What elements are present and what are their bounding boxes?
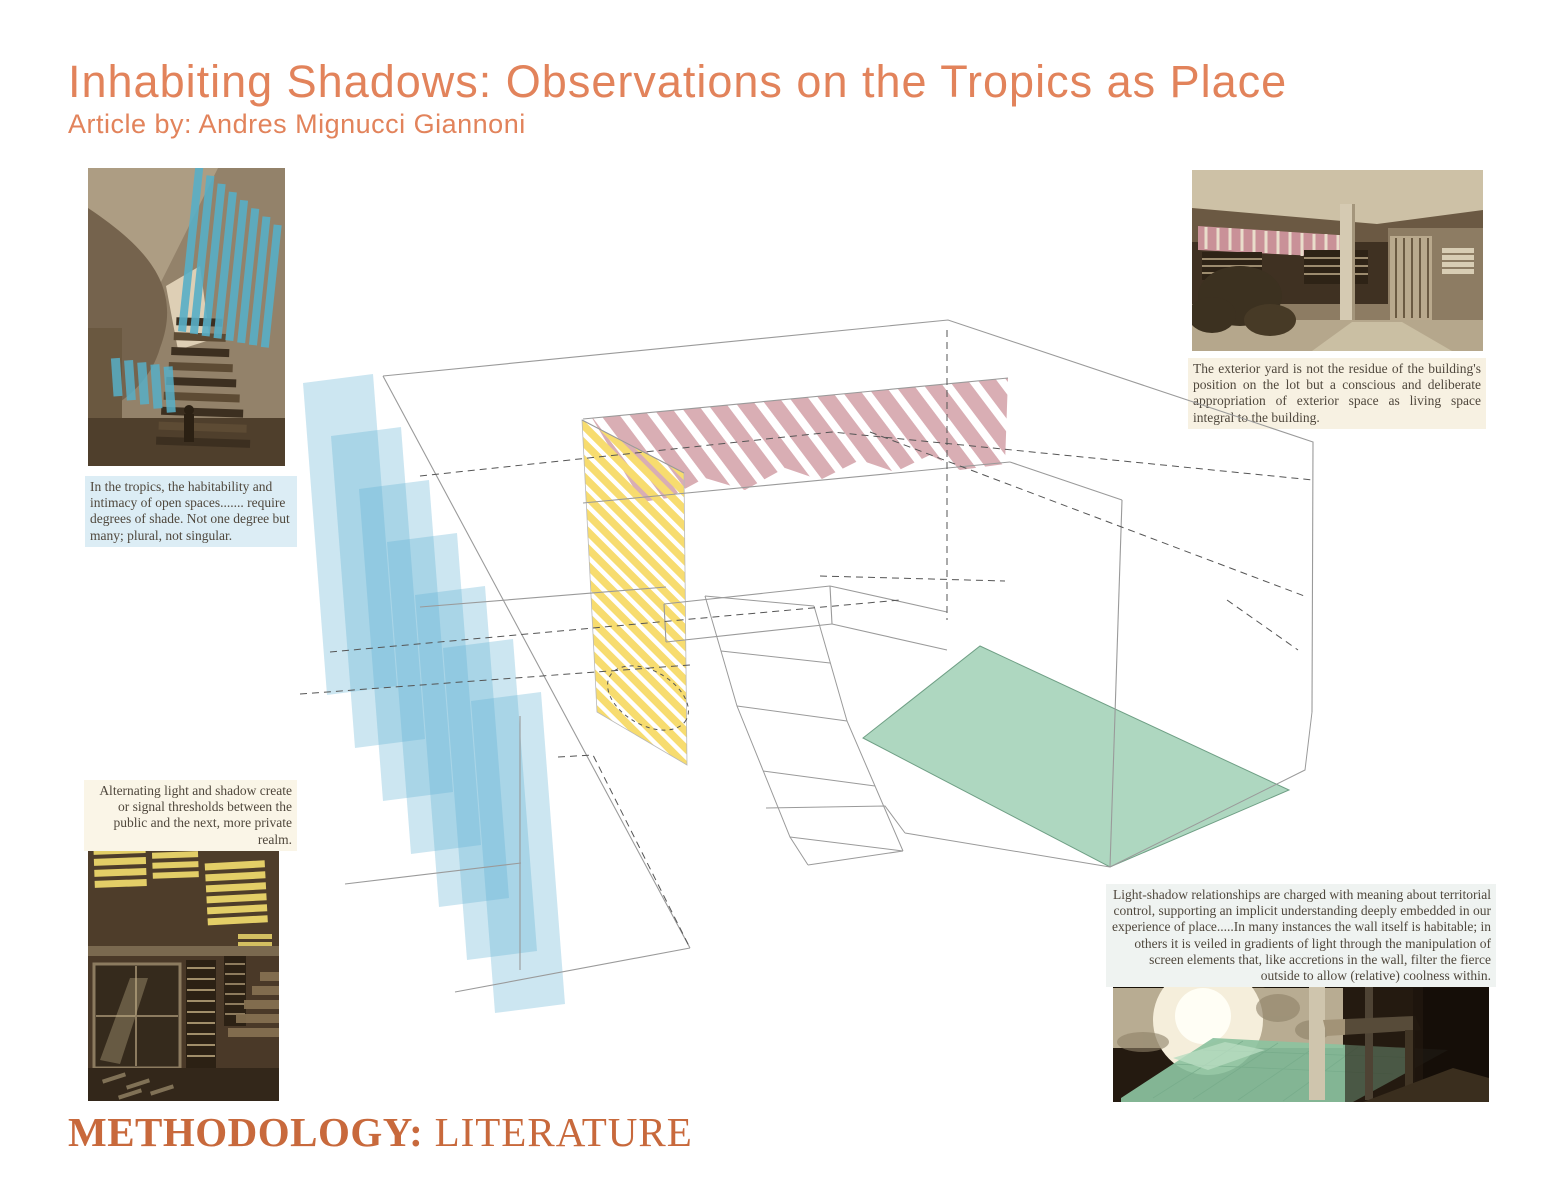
axonometric-building-diagram (0, 0, 1568, 1204)
blue-louver-panels (303, 374, 565, 1013)
methodology-value: LITERATURE (423, 1109, 693, 1155)
methodology-footer: METHODOLOGY: LITERATURE (68, 1108, 693, 1156)
methodology-label: METHODOLOGY: (68, 1109, 423, 1155)
green-courtyard-floor (863, 646, 1289, 867)
